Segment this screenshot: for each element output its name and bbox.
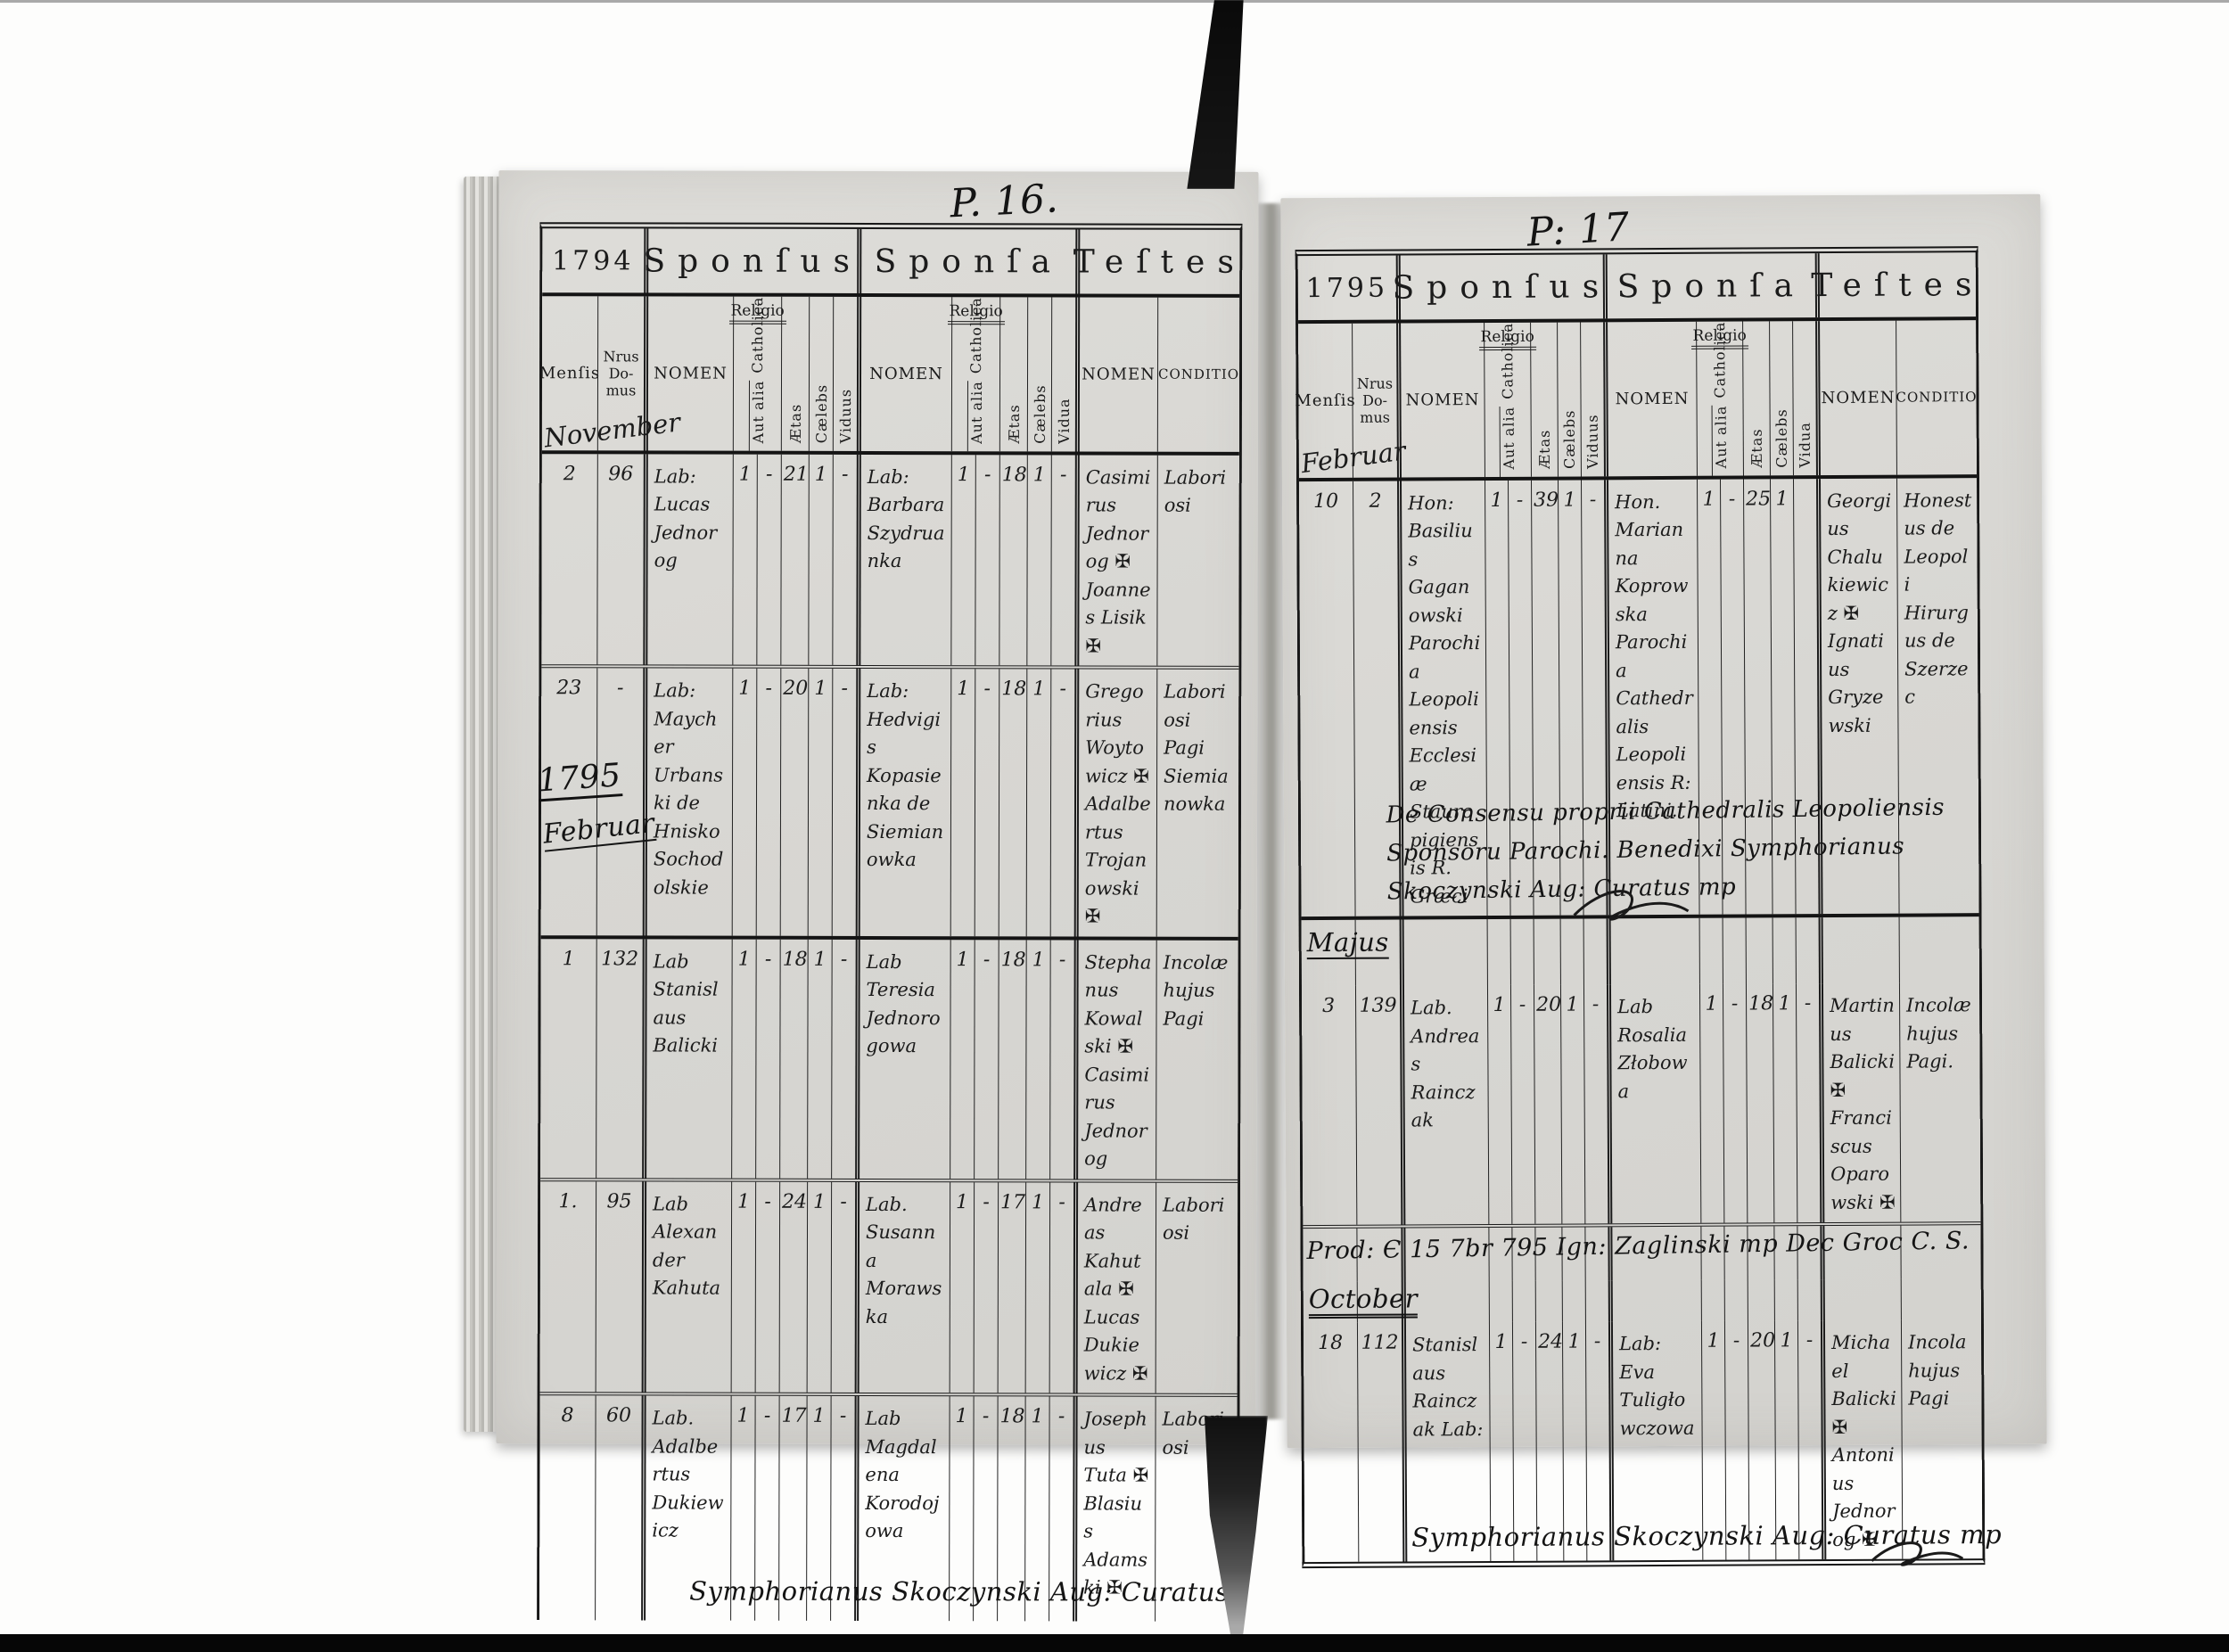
curate-signature: Symphorianus Skoczynski Aug: Curatus <box>689 1576 1228 1607</box>
cell-sponsa-vidua: - <box>1050 455 1074 666</box>
cell-mensis: 1 <box>540 939 596 1178</box>
register-row: 2 96 Lab: Lucas Jednorog 1 - 21 1 - Lab:… <box>541 450 1239 666</box>
cell-sponsa-nomen: Lab. Susanna Morawska <box>855 1182 950 1393</box>
sponsus-nomen-header: NOMEN <box>1396 323 1485 477</box>
cell-sponsus-viduus: - <box>1583 984 1608 1223</box>
sponsa-nomen-header: NOMEN <box>857 297 951 451</box>
cell <box>1585 1280 1608 1321</box>
cell-sponsa-catholica: 1 <box>950 940 975 1179</box>
sponsa-caelebs-header: Cælebs <box>1769 321 1793 475</box>
cell-sponsa-aut-alia: - <box>975 455 999 666</box>
cell-testes-nomen: Andreas Kahutala ✠ Lucas Dukiewicz ✠ <box>1073 1182 1156 1393</box>
cell-conditio: Laboriosi Pagi Siemianowka <box>1156 670 1239 937</box>
cell-sponsa-catholica: 1 <box>1699 984 1723 1223</box>
signature-flourish <box>1868 1537 1966 1574</box>
cell-conditio: Laboriosi <box>1156 455 1238 666</box>
register-row: 1 132 Lab Stanislaus Balicki 1 - 18 1 - … <box>540 935 1238 1179</box>
register-row: 10 2 Hon: Basilius Gaganowski Parochia L… <box>1299 474 1979 916</box>
cell <box>1512 1281 1535 1322</box>
year-cell: 1795 <box>1298 256 1396 321</box>
cell-testes-nomen <box>1819 917 1899 983</box>
sponsa-aetas-header: Ætas <box>1742 321 1770 475</box>
cell-mensis: 10 <box>1299 481 1355 916</box>
sponsus-viduus-header: Viduus <box>833 297 857 451</box>
testes-nomen-header: NOMEN <box>1815 321 1896 475</box>
cell-nrus: 132 <box>596 939 643 1178</box>
sponsus-viduus-header: Viduus <box>1580 322 1604 476</box>
subheader-band: Menſis November Nrus Do- mus NOMEN Relig… <box>542 292 1239 451</box>
cell <box>1723 918 1746 984</box>
cell-testes-nomen: Stephanus Kowalski ✠ Casimirus Jednorog <box>1073 940 1156 1179</box>
month-annotation-october: October <box>1309 1284 1418 1319</box>
mensis-header-cell: Menſis November <box>542 296 597 450</box>
sponsa-section-header: Sponſa <box>857 229 1075 294</box>
cell-sponsa-nomen: Lab: Hedvigis Kopasienka de Siemianowka <box>856 669 951 936</box>
cell-mensis: 3 <box>1302 986 1356 1225</box>
cell-sponsus-viduus: - <box>831 1181 855 1393</box>
cell-sponsa-aetas: 18 <box>998 940 1026 1179</box>
cell-mensis: 23 <box>541 668 597 935</box>
month-annotation-majus: Majus <box>1307 927 1389 959</box>
aut-alia-header: Aut alia <box>1499 407 1517 477</box>
cell-sponsa-aut-alia: - <box>974 940 999 1179</box>
cell-mensis: 2 <box>541 454 596 665</box>
sponsa-aetas-header: Ætas <box>999 297 1027 451</box>
mensis-header-cell: Menſis Februar <box>1298 324 1353 478</box>
marriage-register-table-right: 1795 Sponſus Sponſa Teſtes Menſis Februa… <box>1295 246 1986 1568</box>
cell <box>1487 919 1510 985</box>
cell-testes-nomen: Martinus Balicki ✠ Franciscus Oparowski … <box>1819 983 1900 1222</box>
cell-sponsa-aut-alia: - <box>1723 984 1747 1223</box>
testes-section-header: Teſtes <box>1075 229 1239 293</box>
cell-sponsa-nomen <box>1608 1280 1701 1322</box>
photo-top-edge <box>0 0 2229 3</box>
sponsa-religio-group: Religio Catholica Aut alia <box>1696 322 1743 476</box>
header-band: 1794 Sponſus Sponſa Teſtes <box>542 228 1239 294</box>
cell-sponsa-caelebs: 1 <box>1025 940 1050 1179</box>
sponsus-section-header: Sponſus <box>1396 254 1603 319</box>
cell-nrus: 95 <box>596 1181 642 1393</box>
cell <box>1774 1279 1797 1320</box>
cell <box>1796 917 1819 983</box>
year-label: 1794 <box>552 245 634 276</box>
cell-testes-nomen: Casimirus Jednorog ✠ Joannes Lisik ✠ <box>1074 455 1156 666</box>
sponsa-caelebs-header: Cælebs <box>1027 297 1051 451</box>
testes-nomen-header: NOMEN <box>1075 297 1157 451</box>
bookmark-ribbon-top <box>1186 0 1246 189</box>
cell-sponsus-aetas: 20 <box>780 669 809 936</box>
register-row: 18 112 Stanislaus Rainczak Lab: 1 - 24 1… <box>1304 1319 1982 1562</box>
cell-sponsus-aetas: 18 <box>779 939 808 1178</box>
year-label: 1795 <box>1306 272 1389 303</box>
cell <box>1748 1279 1774 1320</box>
cell-sponsus-aut-alia: - <box>1510 985 1534 1224</box>
cell-testes-nomen: Gregorius Woytowicz ✠ Adalbertus Trojano… <box>1074 670 1157 937</box>
cell <box>1773 917 1796 983</box>
cell-sponsus-caelebs: 1 <box>807 939 832 1178</box>
cell <box>1534 919 1560 985</box>
cell-sponsa-aetas: 17 <box>998 1182 1025 1393</box>
cell-sponsus-aetas: 21 <box>780 454 808 665</box>
catholica-header: Catholica <box>967 297 984 381</box>
cell-sponsa-aut-alia: - <box>974 1182 998 1393</box>
cell-conditio <box>1901 1278 1981 1319</box>
sponsus-section-header: Sponſus <box>644 228 857 293</box>
sponsa-section-header: Sponſa <box>1603 253 1815 318</box>
cell-sponsa-aetas: 18 <box>999 669 1027 936</box>
cell-sponsus-catholica: 1 <box>731 1181 755 1393</box>
sponsa-nomen-header: NOMEN <box>1603 322 1697 476</box>
signature-flourish <box>1568 884 1693 932</box>
cell-nrus: - <box>596 668 644 935</box>
aut-alia-header: Aut alia <box>966 381 984 451</box>
marriage-register-table-left: 1794 Sponſus Sponſa Teſtes Menſis Novemb… <box>537 222 1242 1622</box>
cell-sponsus-nomen: Lab: Lucas Jednorog <box>643 454 732 665</box>
cell-nrus: 112 <box>1357 1323 1402 1562</box>
cell-nrus: 139 <box>1355 986 1401 1225</box>
sponsa-vidua-header: Vidua <box>1792 321 1816 475</box>
cell-sponsus-viduus: - <box>832 454 856 665</box>
cell-conditio: Incolæ hujus Pagi. <box>1899 982 1980 1221</box>
catholica-header: Catholica <box>1499 323 1516 407</box>
cell-testes-nomen <box>1821 1279 1901 1320</box>
sponsus-aetas-header: Ætas <box>781 297 809 451</box>
right-page: P: 17 1795 Sponſus Sponſa Teſtes Menſis … <box>1280 194 2046 1448</box>
cell-sponsa-catholica: 1 <box>950 1182 974 1393</box>
conditio-header: CONDITIO <box>1896 320 1977 474</box>
header-band: 1795 Sponſus Sponſa Teſtes <box>1298 252 1976 320</box>
catholica-header: Catholica <box>1711 322 1728 406</box>
cell <box>1724 1280 1748 1321</box>
cell-sponsa-caelebs: 1 <box>1026 455 1050 666</box>
cell-sponsa-catholica: 1 <box>950 455 975 666</box>
cell-nrus: 96 <box>596 454 643 665</box>
cell-sponsus-catholica: 1 <box>732 454 756 665</box>
cell-sponsus-nomen: Lab: Maycher Urbanski de Hnisko Sochodol… <box>643 669 733 936</box>
cell-sponsa-aetas: 18 <box>999 455 1026 666</box>
note-band: Prod: Є 15 7br 795 Ign: Zaglinski mp Dec… <box>1303 1221 1980 1282</box>
aut-alia-header: Aut alia <box>1711 406 1729 476</box>
cell-mensis: 1. <box>540 1181 596 1393</box>
cell <box>1535 1281 1562 1322</box>
photo-bottom-edge <box>0 1634 2229 1652</box>
cell-sponsus-aut-alia: - <box>755 1181 779 1393</box>
cell-sponsa-caelebs: 1 <box>1026 669 1051 936</box>
cell-sponsus-caelebs: 1 <box>808 454 832 665</box>
cell-sponsa-caelebs: 1 <box>1025 1182 1049 1393</box>
cell-sponsus-nomen: Lab Alexander Kahuta <box>642 1181 731 1393</box>
cell-sponsa-aut-alia: - <box>975 669 999 936</box>
cell-mensis: 18 <box>1304 1323 1358 1562</box>
cell-sponsa-vidua: - <box>1796 983 1820 1222</box>
cell-sponsus-catholica: 1 <box>732 669 757 936</box>
cell-nrus: 60 <box>595 1395 642 1620</box>
cell-sponsa-nomen: Lab: Barbara Szydruanka <box>856 455 950 666</box>
book-page-stack-edges <box>464 177 499 1432</box>
left-page: P. 16. 1794 Sponſus Sponſa Teſtes Menſis… <box>497 170 1259 1445</box>
sponsus-aetas-header: Ætas <box>1530 323 1558 477</box>
cell-sponsus-caelebs: 1 <box>808 669 833 936</box>
cell-conditio: Laboriosi <box>1156 1182 1238 1393</box>
cell-sponsus-viduus: - <box>831 939 856 1178</box>
cell-sponsus-caelebs: 1 <box>1560 985 1584 1224</box>
sponsus-religio-group: Religio Catholica Aut alia <box>733 297 781 451</box>
cell <box>1489 1281 1512 1322</box>
sponsus-religio-group: Religio Catholica Aut alia <box>1484 323 1531 477</box>
sponsa-religio-group: Religio Catholica Aut alia <box>951 297 999 451</box>
cell-sponsa-nomen: Lab Rosalia Złobowa <box>1607 984 1700 1224</box>
conditio-header: CONDITIO <box>1157 298 1239 452</box>
cell-sponsus-aut-alia: - <box>756 454 780 665</box>
sponsa-vidua-header: Vidua <box>1051 297 1075 451</box>
cell-sponsus-viduus: - <box>832 669 857 936</box>
cell-sponsus-aetas: 20 <box>1534 985 1561 1224</box>
scanned-photo: { "document_type": "Parish marriage regi… <box>0 0 2229 1652</box>
month-band: October <box>1304 1278 1981 1323</box>
cell-mensis: 8 <box>539 1395 596 1620</box>
cell-sponsus-catholica: 1 <box>1487 985 1511 1224</box>
register-row: 1. 95 Lab Alexander Kahuta 1 - 24 1 - La… <box>540 1178 1238 1393</box>
register-row: 23 - Lab: Maycher Urbanski de Hnisko Soc… <box>541 664 1239 936</box>
cell-sponsa-caelebs: 1 <box>1773 983 1797 1222</box>
register-row: 3 139 Lab. Andreas Rainczak 1 - 20 1 - L… <box>1302 982 1980 1225</box>
cell-sponsus-aut-alia: - <box>756 669 781 936</box>
cell-sponsa-vidua: - <box>1050 669 1075 936</box>
sponsus-caelebs-header: Cælebs <box>1557 322 1581 476</box>
subheader-band: Menſis Februar Nrus Do- mus NOMEN Religi… <box>1298 316 1977 478</box>
aut-alia-header: Aut alia <box>748 381 766 451</box>
sponsus-caelebs-header: Cælebs <box>809 297 833 451</box>
cell-sponsus-catholica: 1 <box>731 939 756 1178</box>
cell-sponsus-caelebs: 1 <box>807 1181 831 1393</box>
cell <box>1701 1280 1724 1321</box>
cell-sponsus-nomen: Lab. Andreas Rainczak <box>1400 985 1488 1225</box>
year-cell: 1794 <box>542 228 644 292</box>
cell <box>1746 917 1773 983</box>
cell-sponsa-catholica: 1 <box>950 669 975 936</box>
catholica-header: Catholica <box>749 297 766 381</box>
cell <box>1562 1281 1585 1322</box>
cell-sponsus-nomen <box>1400 919 1487 986</box>
cell-sponsa-aetas: 18 <box>1746 983 1773 1222</box>
cell-sponsus-aut-alia: - <box>755 939 780 1178</box>
cell-sponsa-vidua: - <box>1049 940 1074 1179</box>
cell-sponsus-aetas: 24 <box>779 1181 807 1393</box>
cell <box>1699 918 1723 984</box>
cell-sponsa-nomen: Lab Teresia Jednorogowa <box>855 940 950 1179</box>
register-row: 8 60 Lab. Adalbertus Dukiewicz 1 - 17 1 … <box>539 1392 1238 1622</box>
cell-conditio: Incolæ hujus Pagi <box>1156 940 1238 1179</box>
cell <box>1510 919 1534 985</box>
cell-sponsus-nomen: Lab Stanislaus Balicki <box>642 939 732 1178</box>
cell <box>1797 1279 1821 1320</box>
cell-sponsa-vidua: - <box>1049 1182 1073 1393</box>
testes-section-header: Teſtes <box>1815 252 1976 317</box>
left-page-number: P. 16. <box>949 176 1059 226</box>
year-annotation-1795: 1795 <box>537 757 622 801</box>
cell-conditio <box>1899 916 1979 982</box>
